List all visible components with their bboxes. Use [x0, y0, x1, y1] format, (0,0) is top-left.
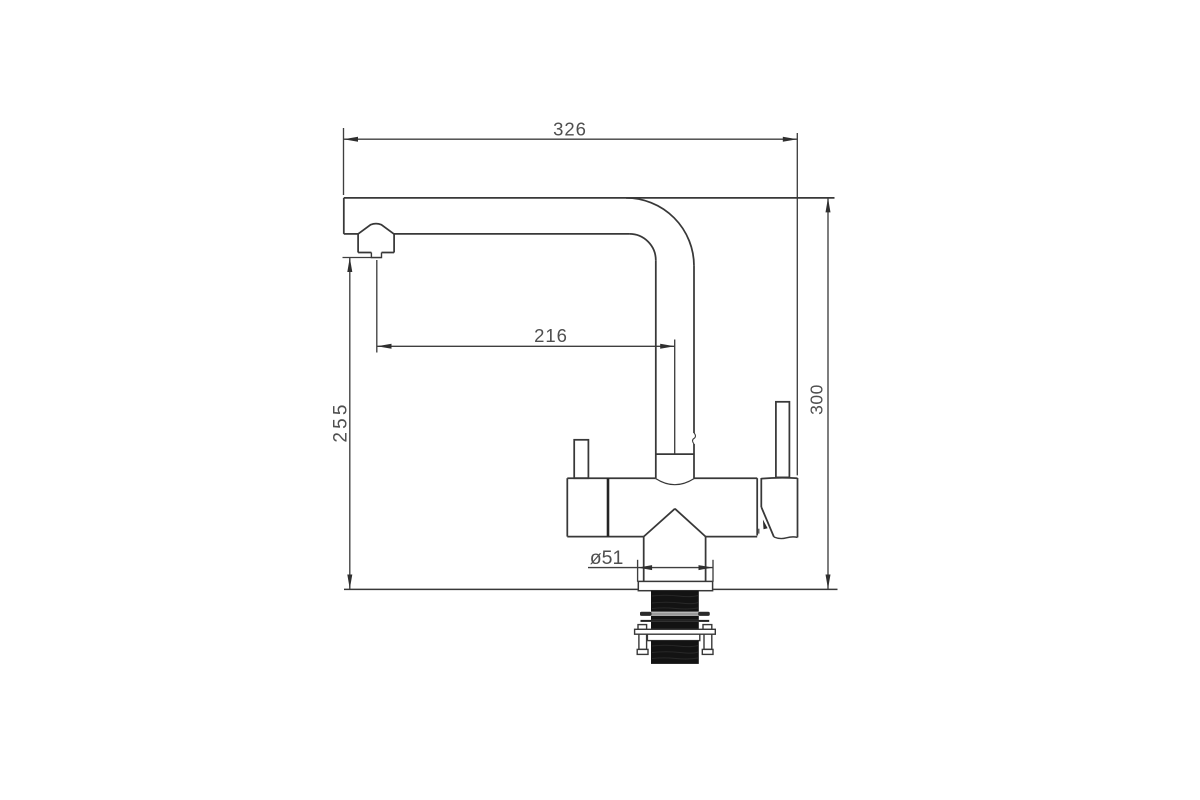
svg-text:255: 255: [331, 401, 352, 442]
svg-text:326: 326: [553, 119, 587, 140]
svg-text:216: 216: [534, 325, 568, 346]
svg-text:ø51: ø51: [590, 547, 624, 569]
svg-text:300: 300: [807, 384, 827, 415]
